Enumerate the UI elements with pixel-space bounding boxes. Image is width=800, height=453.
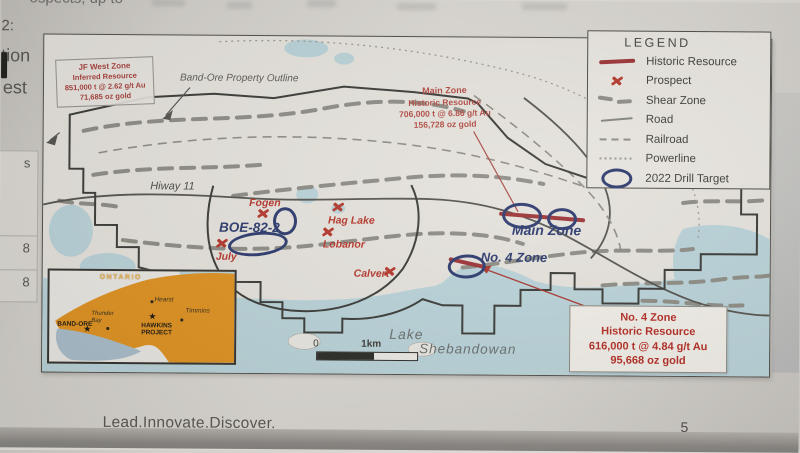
inset-geometry — [49, 271, 235, 363]
resource-ounces: 156,728 oz gold — [395, 118, 495, 131]
legend-label: Road — [646, 114, 674, 126]
dash-pair — [598, 95, 636, 105]
table-cell: 8 — [0, 235, 37, 269]
photo-edge-mark — [1, 52, 7, 78]
small-lake — [334, 53, 354, 65]
prospect-x-icon — [321, 224, 335, 238]
red-line — [599, 58, 635, 64]
legend-row: Road — [588, 110, 770, 131]
legend: LEGEND Historic Resource Prospect Shear … — [586, 30, 771, 189]
resource-ounces: 95,668 oz gold — [572, 353, 724, 368]
margin-text-fragment: 2: — [1, 17, 14, 34]
faint-text-smudge — [227, 2, 253, 9]
table-cell: s — [0, 151, 38, 235]
top-text-fragment: ospects, up to — [30, 0, 124, 7]
legend-label: Railroad — [646, 133, 689, 145]
railroad-icon — [588, 129, 646, 149]
resource-tonnage: 706,000 t @ 6.86 g/t Au — [395, 107, 495, 120]
resource-title: No. 4 Zone — [572, 310, 724, 325]
prospect-label-hag-lake: Hag Lake — [328, 214, 375, 226]
zone-label-main-zone: Main Zone — [512, 222, 581, 238]
lake-label-line1: Lake — [389, 326, 423, 342]
shear-zone-line — [233, 174, 543, 198]
prospect-x-icon — [215, 236, 229, 250]
photo-shading — [772, 93, 800, 373]
property-outline-label: Band-Ore Property Outline — [180, 72, 298, 84]
inset-place-thunder-bay: Thunder Bay — [91, 311, 123, 325]
legend-row: Prospect — [588, 71, 770, 92]
legend-label: Historic Resource — [646, 55, 737, 68]
legend-row: Shear Zone — [588, 90, 770, 111]
small-lake — [49, 205, 93, 257]
jf-west-resource-box: JF West Zone Inferred Resource 851,000 t… — [55, 56, 155, 107]
shear-zone-icon — [588, 90, 646, 110]
shear-zone-line — [93, 163, 268, 176]
road-label-hiway11: Hiway 11 — [150, 180, 195, 192]
inset-place-timmins: Timmins — [185, 308, 210, 315]
main-zone-leader-line — [473, 132, 519, 212]
scale-bar — [316, 351, 418, 361]
legend-label: 2022 Drill Target — [645, 172, 729, 185]
road-line — [601, 117, 633, 122]
prospect-x-icon — [331, 200, 345, 214]
inset-place-hawkins: HAWKINS PROJECT — [141, 322, 183, 337]
faint-text-smudge — [522, 3, 568, 10]
powerline-icon — [587, 149, 645, 169]
prospect-label-fogen: Fogen — [249, 197, 281, 209]
prospect-label-lobanor: Lobanor — [323, 238, 365, 250]
dash — [617, 99, 632, 104]
prospect-x-icon — [588, 71, 646, 91]
main-zone-resource-box: Main Zone Historic Resource 706,000 t @ … — [394, 84, 495, 131]
margin-text-fragment: est — [3, 77, 27, 98]
legend-label: Prospect — [646, 75, 691, 87]
prospect-label-july: July — [216, 251, 237, 263]
dashed-line — [600, 138, 634, 140]
zone-label-boe-82-2: BOE-82-2 — [219, 220, 280, 235]
no4-zone-resource-box: No. 4 Zone Historic Resource 616,000 t @… — [569, 305, 727, 373]
historic-resource-icon — [588, 51, 646, 71]
scale-zero-label: 0 — [313, 338, 319, 349]
resource-subtitle: Historic Resource — [572, 325, 724, 340]
resource-tonnage: 616,000 t @ 4.84 g/t Au — [572, 339, 724, 354]
legend-row: Historic Resource — [588, 51, 770, 72]
hawkins-star-icon: ★ — [148, 312, 156, 321]
dotted-line — [599, 158, 633, 160]
inset-place-hearst: Hearst — [154, 296, 173, 303]
faint-text-smudge — [307, 0, 337, 8]
faint-text-smudge — [397, 3, 437, 10]
legend-label: Powerline — [645, 153, 696, 165]
legend-title: LEGEND — [624, 36, 770, 51]
zone-label-no4-zone: No. 4 Zone — [481, 250, 548, 265]
arrowhead — [48, 137, 57, 145]
drill-target-icon — [587, 168, 645, 188]
place-dot — [106, 327, 109, 330]
prospect-label-calvert: Calvert — [354, 268, 390, 280]
property-label-leader — [166, 87, 190, 115]
photographed-slide: ospects, up to 2: tion est s 8 8 — [0, 0, 800, 453]
ontario-inset-map: ONTARIO Hearst Timmins Thunder Bay ★ BAN… — [47, 269, 237, 365]
legend-row: Railroad — [588, 129, 770, 150]
place-dot — [150, 300, 153, 303]
faint-text-smudge — [152, 0, 186, 6]
clipped-table-fragment: s 8 8 — [0, 150, 39, 302]
legend-row: 2022 Drill Target — [587, 168, 769, 189]
table-cell: 8 — [0, 269, 37, 301]
inset-place-band-ore: BAND-ORE — [57, 321, 92, 328]
road-icon — [588, 110, 646, 130]
photo-bottom-shadow — [0, 427, 799, 453]
x-glyph — [610, 74, 624, 88]
province-label: ONTARIO — [100, 274, 142, 281]
scale-1km-label: 1km — [361, 339, 381, 350]
legend-row: Powerline — [587, 149, 769, 170]
legend-label: Shear Zone — [646, 94, 706, 106]
place-dot — [180, 318, 183, 321]
lake-label-line2: Shebandowan — [419, 341, 516, 357]
dash — [598, 95, 613, 101]
ellipse-glyph — [601, 168, 632, 188]
